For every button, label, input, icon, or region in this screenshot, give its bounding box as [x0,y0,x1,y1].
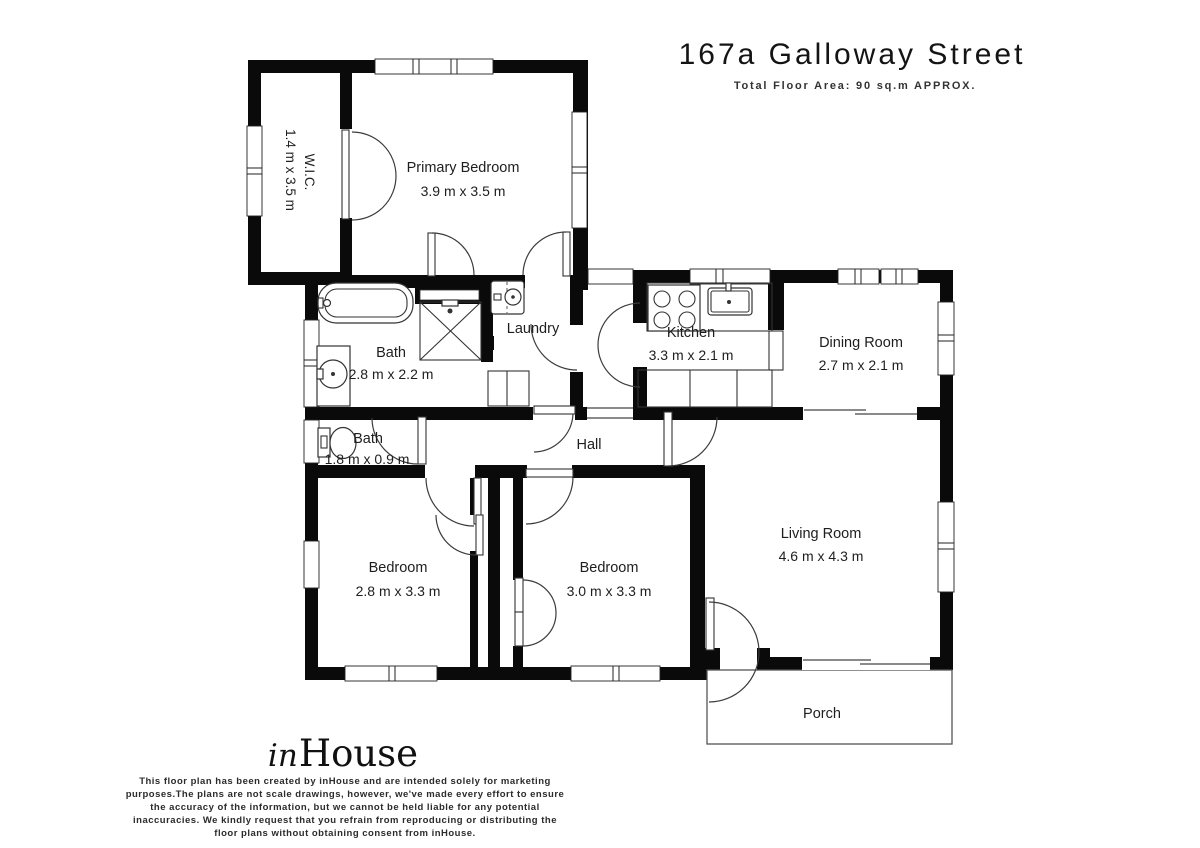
openings-layer [587,406,930,670]
closet-double-door-icon [515,578,556,646]
svg-text:purposes.The plans are not sca: purposes.The plans are not scale drawing… [126,789,565,800]
floor-plan-page: W.I.C. 1.4 m x 3.5 m Primary Bedroom 3.9… [0,0,1200,848]
fridge-icon [769,331,783,370]
window-icon [588,269,633,284]
room-name: Bedroom [580,560,639,576]
room-name: Hall [577,437,602,453]
laundry-counter-icon [488,371,529,406]
room-dims: 2.7 m x 2.1 m [819,357,904,373]
window-icon [572,112,587,228]
room-label-bedroom-right: Bedroom 3.0 m x 3.3 m [567,560,652,599]
room-label-laundry: Laundry [507,321,560,337]
room-name: W.I.C. [302,154,317,191]
room-name: Primary Bedroom [407,160,520,176]
room-dims: 3.0 m x 3.3 m [567,583,652,599]
cased-opening [587,406,633,420]
logo-script-part: in [268,738,298,774]
room-dims: 3.3 m x 2.1 m [649,347,734,363]
svg-text:floor plans without obtaining: floor plans without obtaining consent fr… [214,828,475,839]
room-name: Bath [353,431,383,447]
window-icon [690,269,770,284]
room-name: Porch [803,706,841,722]
sliding-door-icon [803,406,917,420]
room-label-living: Living Room 4.6 m x 4.3 m [779,526,864,564]
svg-text:the accuracy of the informatio: the accuracy of the information, but we … [150,802,539,813]
svg-text:This floor plan has been creat: This floor plan has been created by inHo… [139,776,551,787]
room-dims: 4.6 m x 4.3 m [779,548,864,564]
door-icon [534,406,575,452]
window-icon [304,541,319,588]
bathroom-sink-icon [317,346,350,406]
floor-plan-canvas: W.I.C. 1.4 m x 3.5 m Primary Bedroom 3.9… [0,0,1200,848]
window-icon [304,420,319,463]
window-icon [938,502,954,592]
room-dims: 2.8 m x 2.2 m [349,366,434,382]
room-dims: 2.8 m x 3.3 m [356,583,441,599]
inhouse-logo: inHouse [268,732,418,775]
room-name: Dining Room [819,335,903,351]
sliding-door-icon [802,657,930,670]
room-name: Kitchen [667,325,715,341]
room-dims: 1.8 m x 0.9 m [325,451,410,467]
page-title: 167a Galloway Street [679,38,1026,71]
window-icon [375,59,493,74]
bathtub-icon [318,283,413,323]
disclaimer-text: This floor plan has been created by inHo… [126,776,565,839]
room-name: Living Room [781,526,862,542]
room-name: Bedroom [369,560,428,576]
room-label-dining: Dining Room 2.7 m x 2.1 m [819,335,904,373]
kitchen-lower-counter-icon [638,370,772,407]
window-icon [345,666,437,681]
window-icon [571,666,660,681]
door-icon [428,233,474,276]
washing-machine-icon [491,281,524,314]
door-icon [664,412,717,466]
room-name: Bath [376,345,406,361]
header: 167a Galloway Street Total Floor Area: 9… [679,38,1026,92]
room-dims: 1.4 m x 3.5 m [283,129,298,211]
room-label-porch: Porch [803,706,841,722]
svg-text:inaccuracies. We kindly reques: inaccuracies. We kindly request that you… [133,815,557,826]
room-name: Laundry [507,321,560,337]
page-subtitle: Total Floor Area: 90 sq.m APPROX. [734,80,976,92]
room-label-bath: Bath 2.8 m x 2.2 m [349,345,434,382]
room-label-wic: W.I.C. 1.4 m x 3.5 m [283,129,317,211]
door-icon [523,232,570,276]
room-label-primary-bedroom: Primary Bedroom 3.9 m x 3.5 m [407,160,520,199]
logo-serif-part: House [299,732,418,775]
window-icon [938,302,954,375]
door-icon [526,469,573,524]
window-icon [247,126,262,216]
window-icon [838,269,879,284]
room-dims: 3.9 m x 3.5 m [421,183,506,199]
room-label-bedroom-left: Bedroom 2.8 m x 3.3 m [356,560,441,599]
shower-icon [420,300,481,360]
kitchen-sink-icon [708,283,752,315]
window-icon [881,269,918,284]
room-labels-layer: W.I.C. 1.4 m x 3.5 m Primary Bedroom 3.9… [283,129,903,722]
double-door-icon [342,130,396,220]
footer: inHouse This floor plan has been created… [126,732,565,839]
room-label-hall: Hall [577,437,602,453]
closet-door-icon [436,515,483,555]
